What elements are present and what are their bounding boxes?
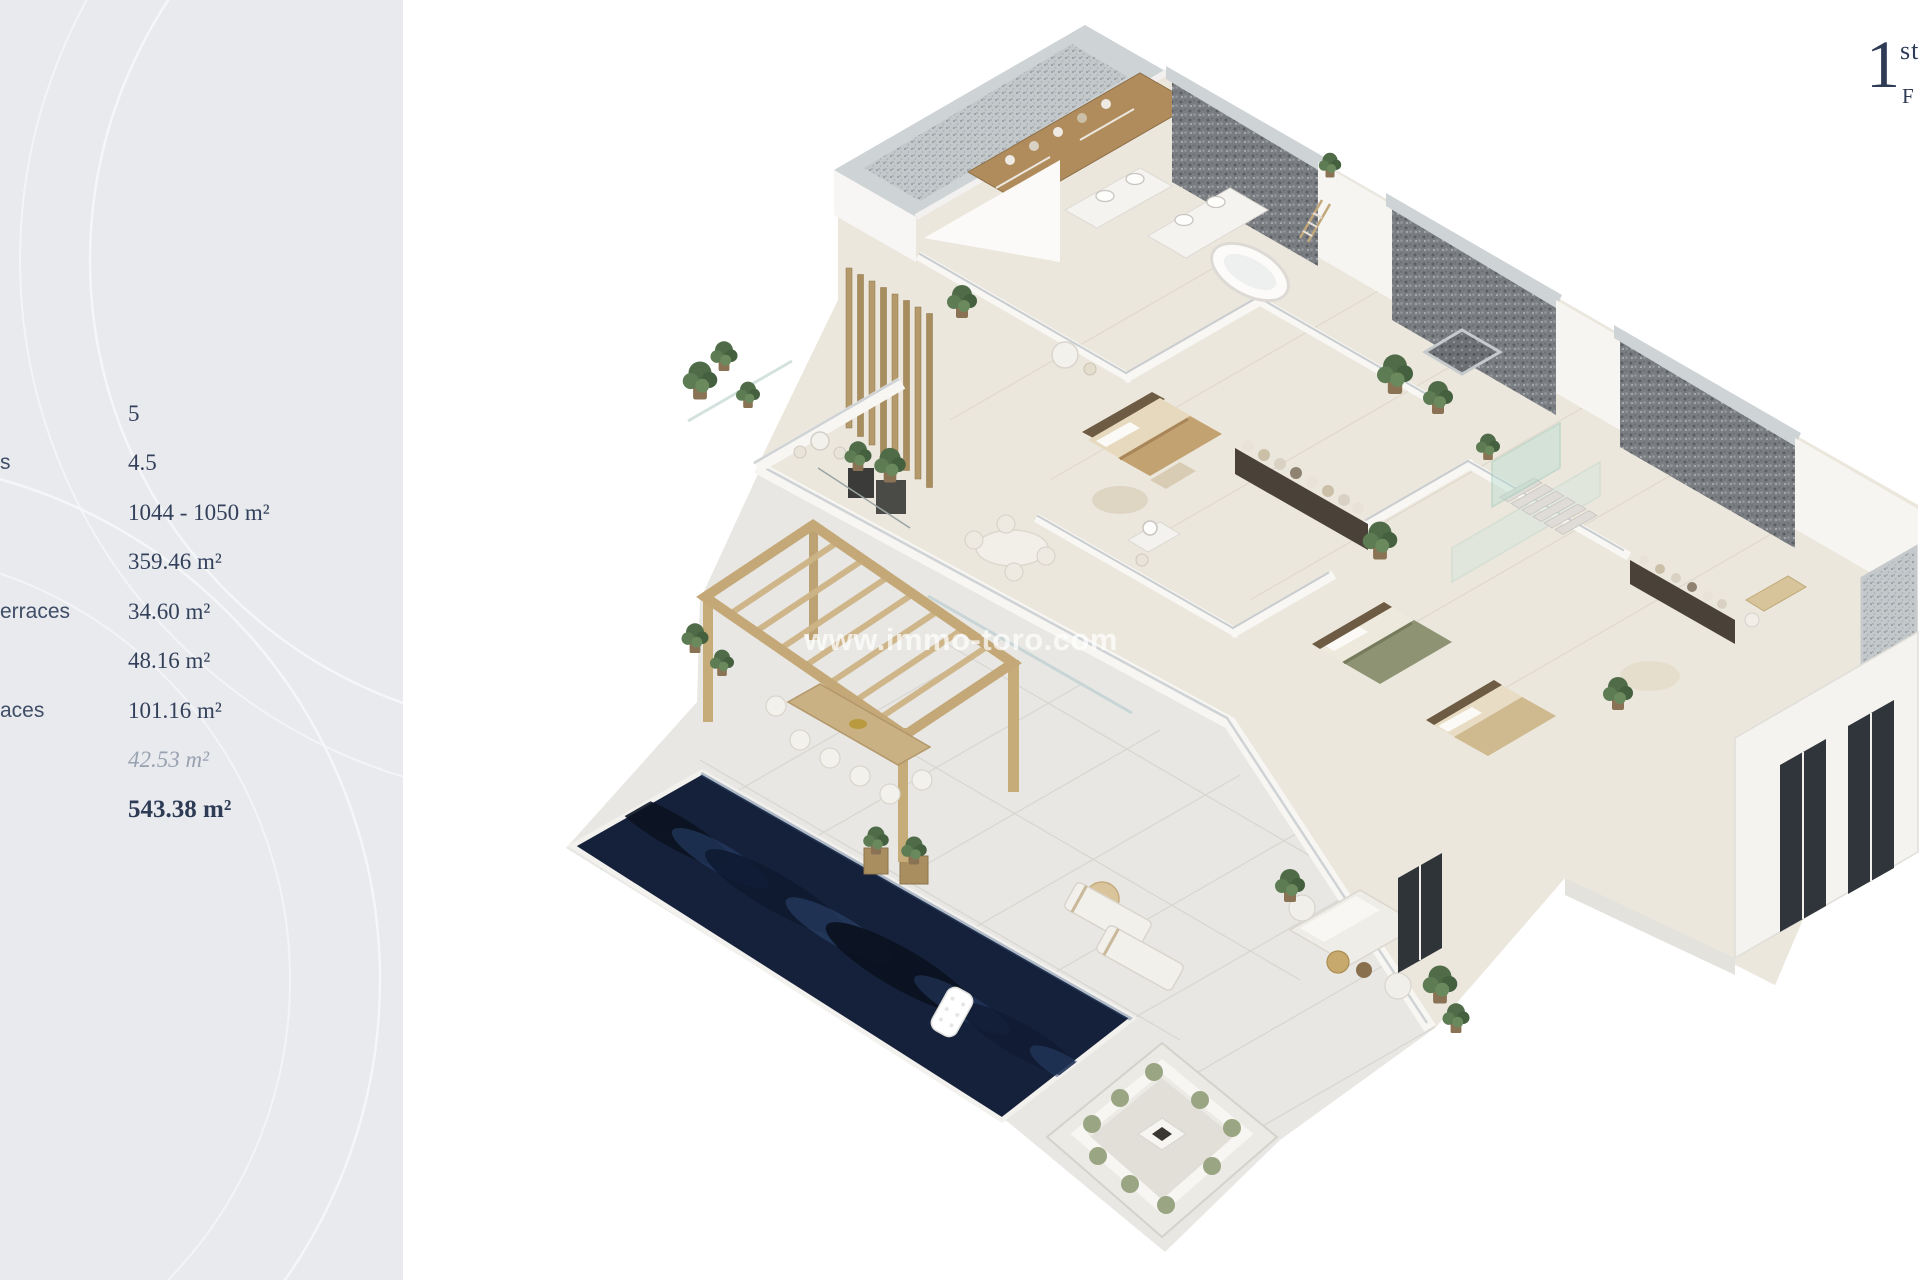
real-estate-floorplan-page: www.immo-toro.com 5 s 4.5 1044 - 1050 m²: [0, 0, 1920, 1280]
spec-value: 4.5: [128, 450, 157, 476]
floor-suffix: st: [1900, 36, 1919, 65]
floor-number: 1: [1866, 30, 1900, 102]
spec-value: 34.60 m²: [128, 599, 210, 625]
floor-word-fragment: F: [1902, 86, 1920, 107]
spec-row: s 4.5: [0, 439, 403, 489]
spec-value: 543.38 m²: [128, 796, 231, 824]
spec-row: 543.38 m²: [0, 785, 403, 835]
spec-label: aces: [0, 699, 44, 723]
spec-row: aces 101.16 m²: [0, 686, 403, 736]
spec-row: 42.53 m²: [0, 736, 403, 786]
floor-label: 1st F: [1866, 30, 1920, 120]
spec-row: erraces 34.60 m²: [0, 587, 403, 637]
spec-value: 48.16 m²: [128, 648, 210, 674]
spec-label: erraces: [0, 600, 70, 624]
spec-value: 359.46 m²: [128, 549, 222, 575]
spec-value: 101.16 m²: [128, 698, 222, 724]
spec-value: 1044 - 1050 m²: [128, 500, 270, 526]
spec-value: 42.53 m²: [128, 747, 209, 773]
spec-row: 1044 - 1050 m²: [0, 488, 403, 538]
spec-row: 48.16 m²: [0, 637, 403, 687]
spec-row: 5: [0, 389, 403, 439]
spec-table: 5 s 4.5 1044 - 1050 m² 359.46 m² erraces…: [0, 389, 403, 835]
specs-sidebar: 5 s 4.5 1044 - 1050 m² 359.46 m² erraces…: [0, 0, 403, 1280]
spec-label: s: [0, 451, 11, 475]
spec-value: 5: [128, 401, 140, 427]
watermark: www.immo-toro.com: [803, 622, 1118, 657]
spec-row: 359.46 m²: [0, 538, 403, 588]
